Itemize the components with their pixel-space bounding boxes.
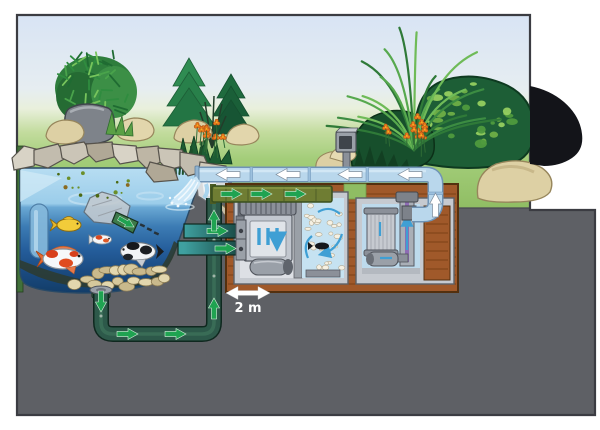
bush-silhouette [530, 86, 582, 166]
side-inlet-highlight [34, 210, 38, 252]
chamber-grate [306, 270, 340, 277]
pond-system-diagram: 2 m [0, 0, 600, 430]
side-inlet-pipe [30, 204, 48, 258]
fish-silhouette [315, 243, 329, 250]
illustration-canvas: 2 m [0, 0, 600, 430]
distance-label: 2 m [234, 301, 261, 316]
